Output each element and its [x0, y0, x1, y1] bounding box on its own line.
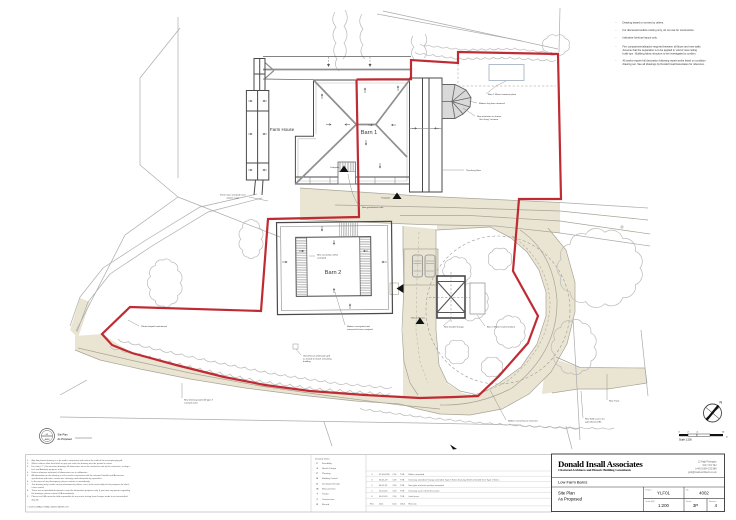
svg-text:TOB: TOB — [400, 479, 405, 481]
svg-text:-: - — [616, 29, 617, 32]
svg-text:TOB: TOB — [400, 485, 405, 487]
svg-text:CJS: CJS — [393, 496, 398, 498]
svg-text:YLF01: YLF01 — [657, 491, 670, 496]
svg-text:25-10-20: 25-10-20 — [379, 490, 388, 492]
svg-text:07-09-2020: 07-09-2020 — [379, 474, 391, 476]
svg-text:TOB: TOB — [400, 474, 405, 476]
svg-text:1:200: 1:200 — [658, 503, 670, 508]
svg-text:Barn 1: Barn 1 — [361, 130, 377, 136]
svg-text:Site Plan: Site Plan — [558, 491, 575, 496]
svg-text:06-11-20: 06-11-20 — [379, 485, 388, 487]
svg-text:CJS: CJS — [393, 490, 398, 492]
svg-text:-: - — [616, 21, 617, 24]
svg-text:Developed Design: Developed Design — [322, 483, 341, 485]
svg-text:Site Plan: Site Plan — [58, 434, 69, 437]
svg-text:As Proposed: As Proposed — [558, 497, 583, 502]
svg-text:dwg file.: dwg file. — [32, 499, 40, 501]
svg-text:Chkd: Chkd — [400, 504, 406, 506]
svg-text:Farm House: Farm House — [270, 127, 295, 132]
svg-text:TOB: TOB — [400, 490, 405, 492]
svg-text:Chartered Architects and Histo: Chartered Architects and Historic Buildi… — [558, 468, 631, 472]
svg-text:m: m — [726, 437, 728, 439]
svg-text:06-10-20: 06-10-20 — [379, 496, 388, 498]
svg-text:Revision: Revision — [409, 504, 418, 506]
svg-text:Railins amended: Railins amended — [409, 474, 425, 476]
svg-text:28-01-09: 28-01-09 — [379, 479, 388, 481]
svg-text:-: - — [616, 37, 617, 40]
svg-text:4002: 4002 — [45, 439, 51, 441]
svg-text:Low Farm Barns: Low Farm Barns — [558, 480, 587, 485]
svg-text:4002: 4002 — [699, 491, 709, 496]
svg-text:building: building — [303, 361, 311, 363]
svg-text:M: M — [317, 489, 319, 491]
svg-text:Barn 2: Barn 2 — [325, 270, 341, 276]
svg-text:CJS: CJS — [393, 474, 398, 476]
svg-text:(+44) 01904 232 888: (+44) 01904 232 888 — [695, 468, 717, 470]
svg-text:-: - — [616, 46, 617, 49]
svg-text:3P: 3P — [693, 503, 698, 508]
svg-text:TOB: TOB — [400, 496, 405, 498]
svg-text:No: No — [686, 489, 688, 491]
svg-text:As Proposed: As Proposed — [58, 438, 73, 441]
svg-text:-: - — [616, 60, 617, 63]
svg-text:Planning: Planning — [322, 473, 331, 475]
svg-text:Scale 1:200: Scale 1:200 — [679, 439, 692, 442]
svg-text:CJS: CJS — [393, 479, 398, 481]
svg-text:CJS: CJS — [393, 485, 398, 487]
